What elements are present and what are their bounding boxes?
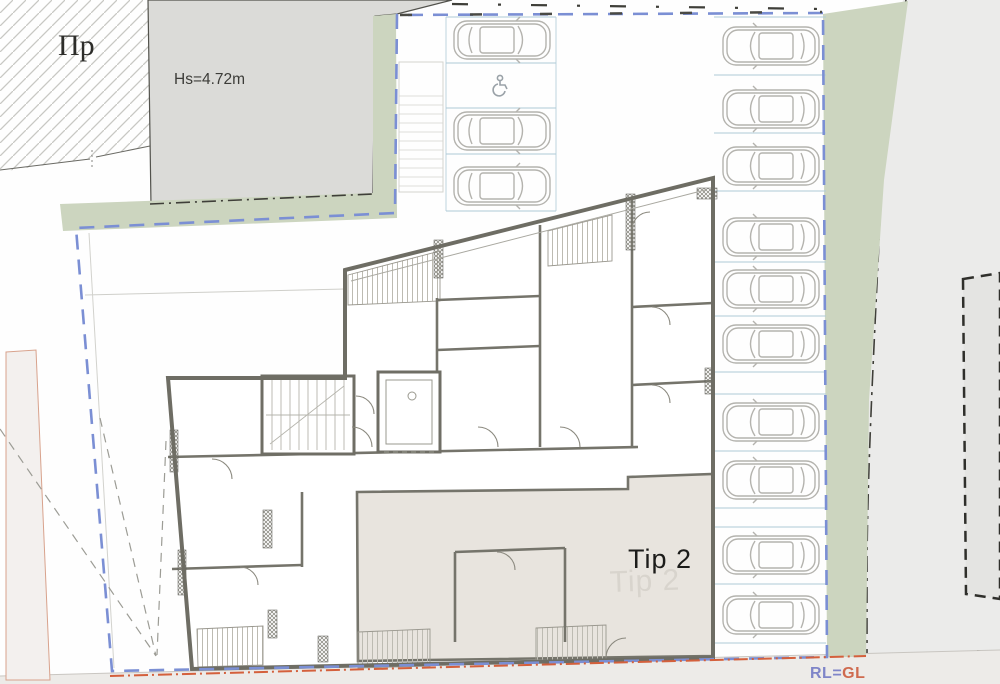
neighbor-building-outline: [963, 273, 1000, 599]
car-icon: [454, 108, 550, 154]
car-icon: [454, 163, 550, 209]
parking-cars-right: [723, 23, 819, 638]
road-strip-left: [6, 350, 50, 680]
car-icon: [723, 143, 819, 189]
car-icon: [723, 532, 819, 578]
car-icon: [723, 86, 819, 132]
car-icon: [723, 214, 819, 260]
unit-type-label[interactable]: Tip 2: [628, 544, 692, 574]
parking-dividers-top: [446, 17, 556, 211]
adjacent-plot-label: Пр: [58, 29, 95, 62]
site-plan-canvas: Пр Hs=4.72m Tip 2 Tip 2 RL=GL: [0, 0, 1000, 684]
height-note-label: Hs=4.72m: [174, 71, 245, 88]
rl-label: RL=: [810, 665, 842, 682]
site-plan-page: Пр Hs=4.72m Tip 2 Tip 2 RL=GL: [0, 0, 1000, 684]
elevator: [378, 372, 440, 452]
wheelchair-icon: [493, 75, 507, 95]
car-icon: [723, 399, 819, 445]
car-icon: [723, 266, 819, 312]
parking-cars-top: [454, 17, 550, 209]
car-icon: [723, 457, 819, 503]
car-icon: [454, 17, 550, 63]
exterior-stair: [399, 62, 443, 192]
gl-label: GL: [842, 665, 865, 682]
car-icon: [723, 321, 819, 367]
neighbor-block-topleft: [148, 0, 452, 206]
adjacent-plot-hatch: [0, 0, 151, 172]
car-icon: [723, 23, 819, 69]
car-icon: [723, 592, 819, 638]
level-note: RL=GL: [810, 665, 865, 682]
stairwell: [262, 376, 354, 454]
